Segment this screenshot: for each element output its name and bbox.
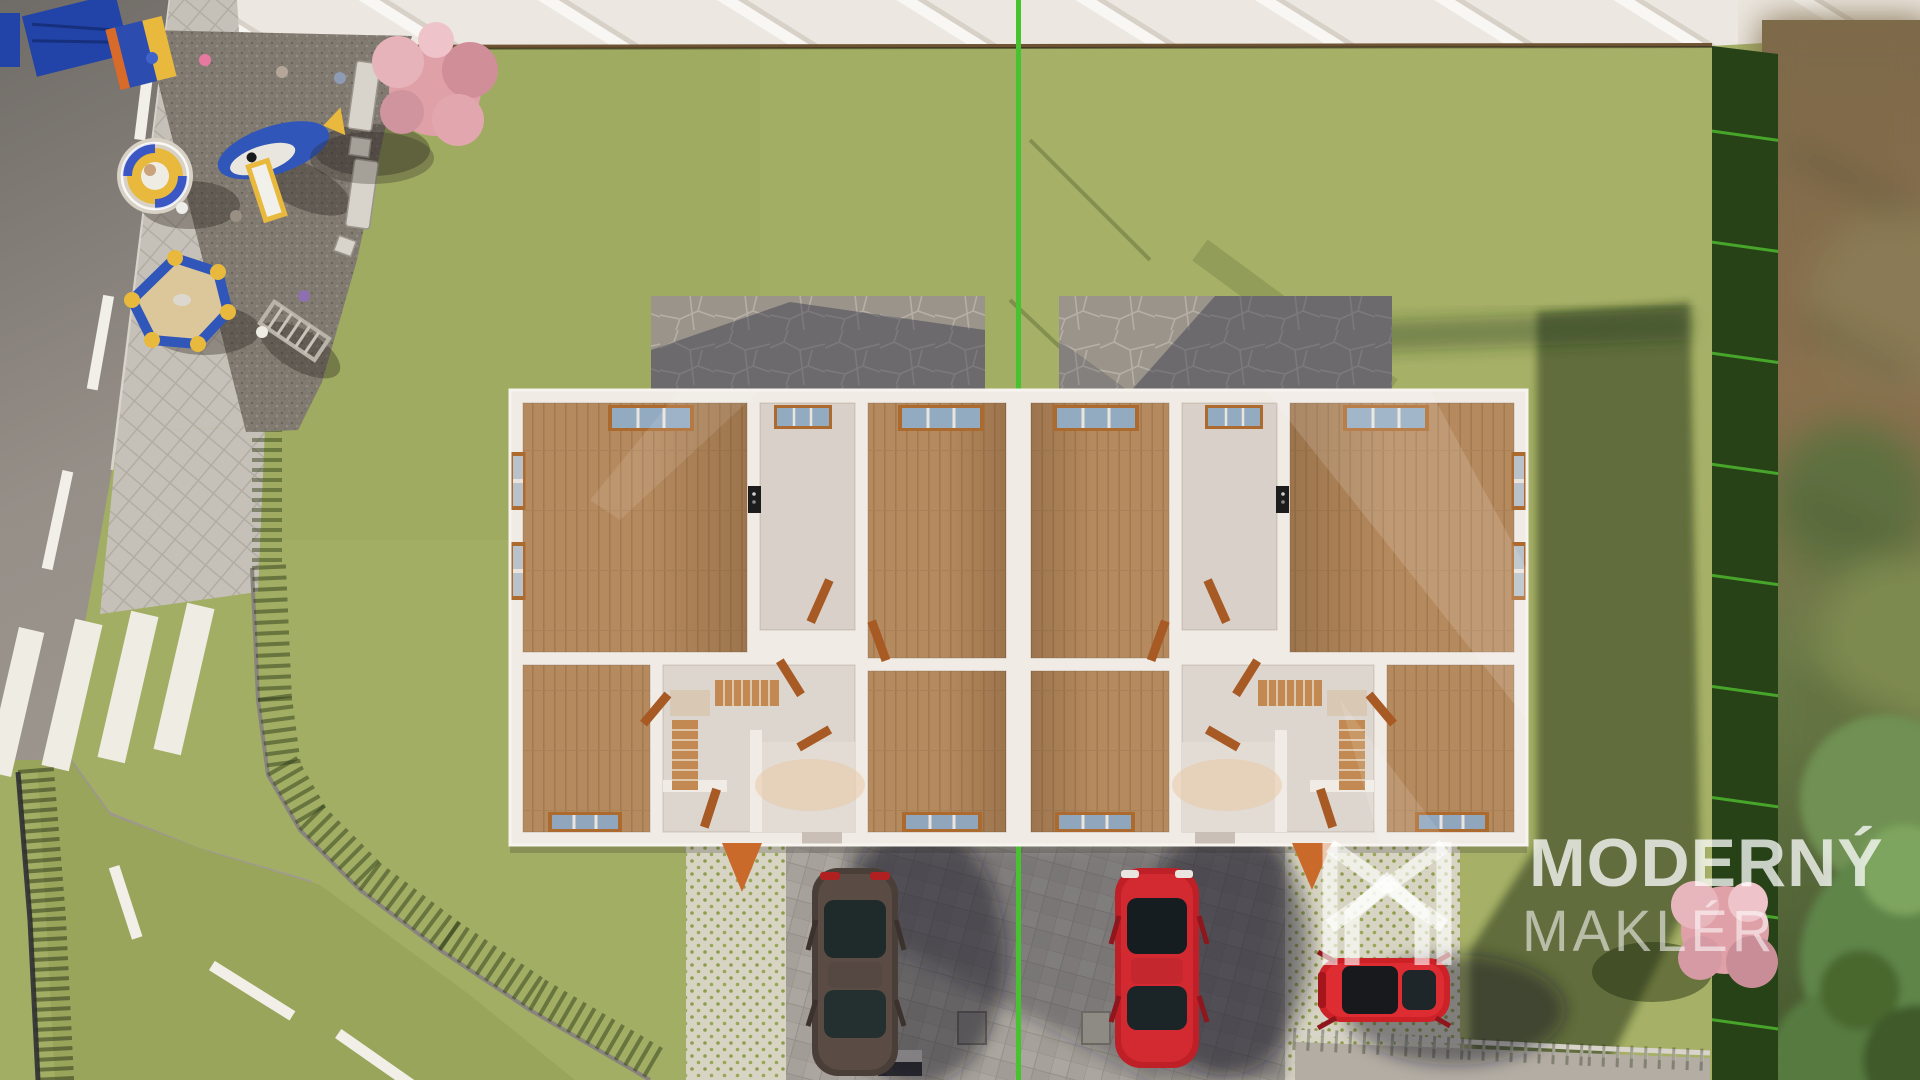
- stone-walkway-right: [1059, 296, 1392, 392]
- aerial-render-scene: MODERNÝ MAKLÉR: [0, 0, 1920, 1080]
- car-red-hatchback: [1318, 952, 1450, 1028]
- scene-canvas: [0, 0, 1920, 1080]
- car-dark: [808, 868, 904, 1076]
- duplex-floorplan-building: [510, 390, 1527, 892]
- car-red: [1111, 868, 1207, 1068]
- stone-walkway-left: [651, 296, 985, 392]
- neighbor-roof: [230, 0, 1920, 49]
